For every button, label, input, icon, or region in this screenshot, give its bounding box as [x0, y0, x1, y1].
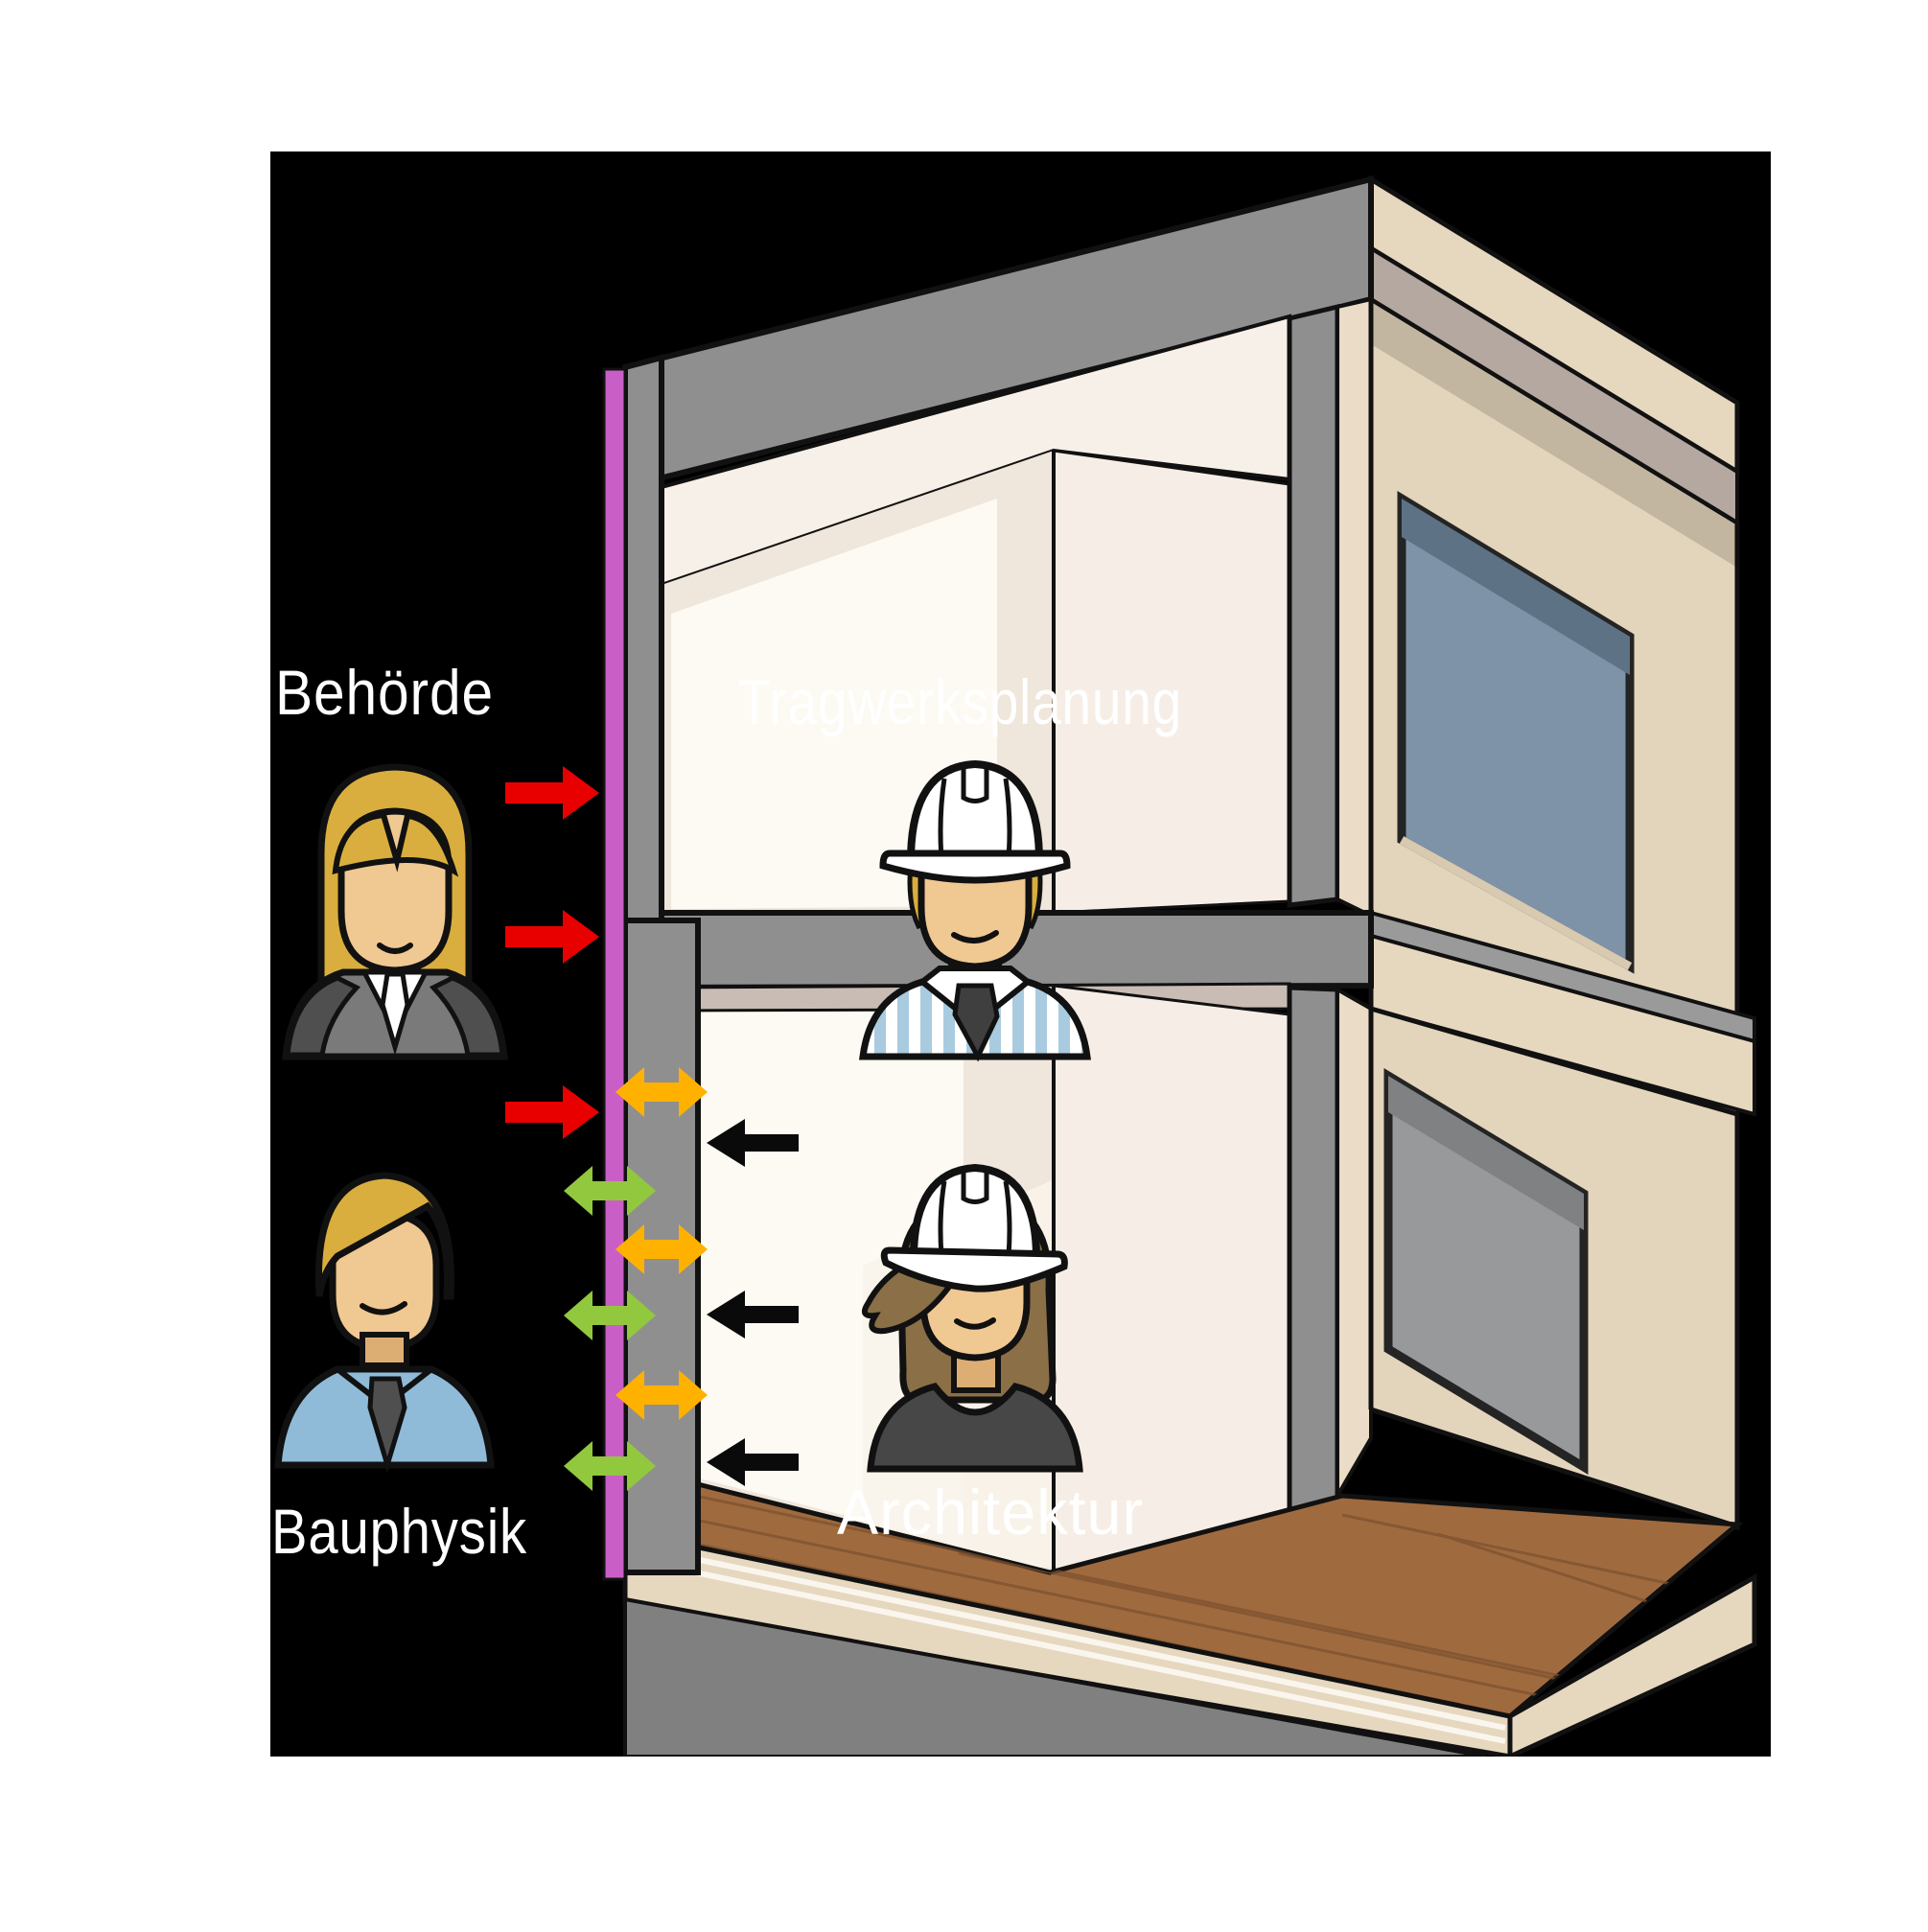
- label-tragwerksplanung: Tragwerksplanung: [738, 666, 1182, 737]
- left-wall-cut-upper: [625, 358, 662, 920]
- slide: Behörde Tragwerksplanung Bauphysik Archi…: [0, 0, 1928, 1932]
- corner-column-upper: [1289, 307, 1337, 905]
- building-cutaway: [604, 179, 1754, 1757]
- corner-column-lower: [1289, 988, 1337, 1553]
- label-behoerde: Behörde: [275, 657, 494, 728]
- corner-wall-sliver-upper: [1337, 299, 1371, 916]
- label-bauphysik: Bauphysik: [271, 1496, 527, 1567]
- label-architektur: Architektur: [837, 1477, 1144, 1548]
- bauphysik-neck: [362, 1335, 407, 1365]
- corner-wall-sliver-lower: [1337, 989, 1371, 1496]
- diagram-canvas: Behörde Tragwerksplanung Bauphysik Archi…: [0, 0, 1928, 1932]
